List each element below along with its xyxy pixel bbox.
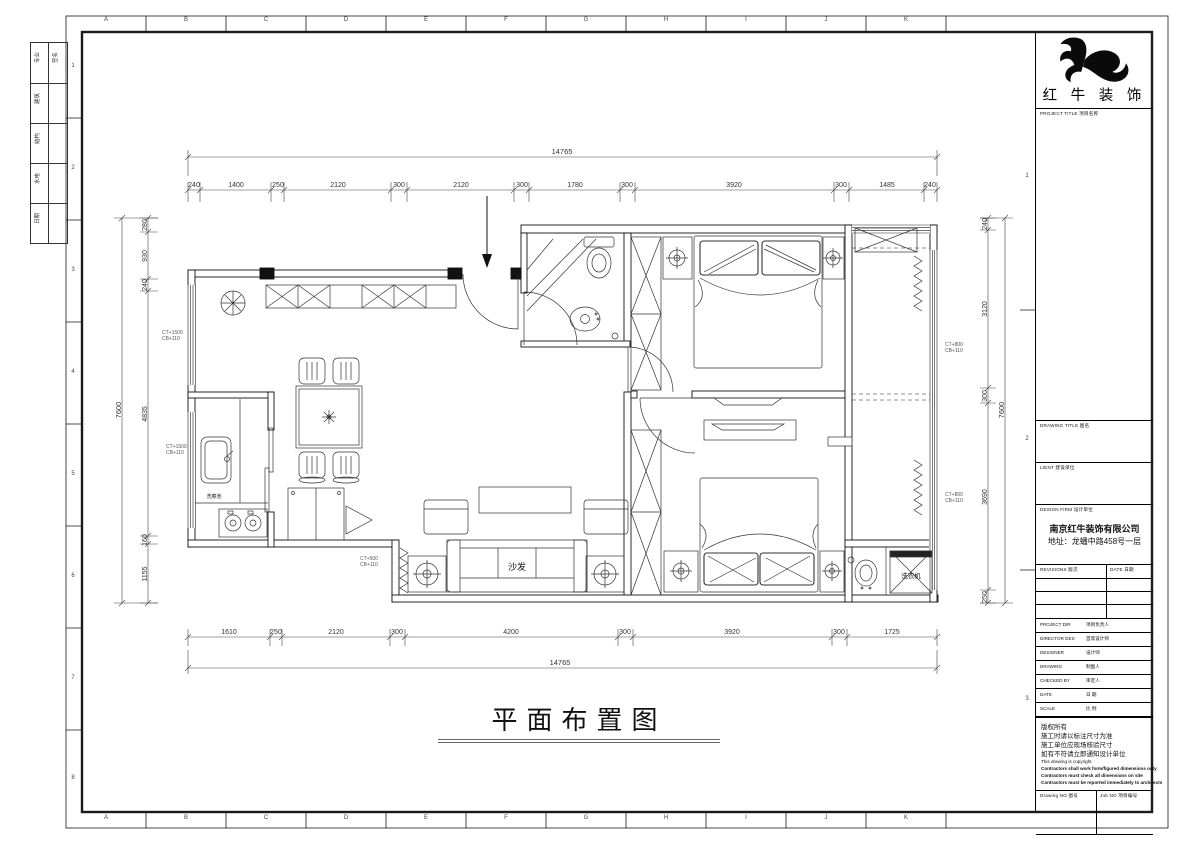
dim-bottom-total: 14765 xyxy=(550,658,571,667)
dim-bottom-4: 4200 xyxy=(503,629,519,636)
window-tag: CT+1500 CB+110 xyxy=(166,444,187,456)
dim-bottom-1: 250 xyxy=(270,629,282,636)
drawing-title-text: 平面布置图 xyxy=(438,700,720,737)
sign-cell: 建筑 xyxy=(33,93,41,104)
project-title-label: PROJECT TITLE 项目名称 xyxy=(1040,111,1098,117)
grid-letter: I xyxy=(740,17,752,23)
sign-cell: 专业 xyxy=(33,52,41,63)
entry-arrow xyxy=(482,196,492,268)
dining xyxy=(296,358,362,483)
client-label: LIENT 建设单位 xyxy=(1040,465,1075,471)
tb-row-drawing: DRAWING 制图人 xyxy=(1036,660,1153,674)
dim-left-3: 4835 xyxy=(142,406,149,422)
dim-top-6: 300 xyxy=(516,182,528,189)
dim-top-4: 300 xyxy=(393,182,405,189)
window-tag: CT+500 CB+110 xyxy=(360,556,378,568)
dim-top-8: 300 xyxy=(621,182,633,189)
drawing-title-label: DRAWING TITLE 图名 xyxy=(1040,423,1089,429)
dim-bottom-6: 3920 xyxy=(724,629,740,636)
note-en: Contractors must check all dimensions on… xyxy=(1041,773,1143,778)
dim-top-10: 300 xyxy=(835,182,847,189)
grid-letter: D xyxy=(340,17,352,23)
sign-cell: 结构 xyxy=(33,133,41,144)
grid-letter: H xyxy=(660,17,672,23)
row-number: 8 xyxy=(68,775,78,781)
dim-right-total: 7600 xyxy=(997,402,1006,419)
window-tag-line: CB+110 xyxy=(166,450,187,456)
dim-bottom-0: 1610 xyxy=(221,629,237,636)
tb-row-designer: DESIGNER 设计师 xyxy=(1036,646,1153,660)
sink-label: 洗菜池 xyxy=(206,493,221,500)
dim-bottom-8: 1725 xyxy=(884,629,900,636)
grid-letter: C xyxy=(260,17,272,23)
grid-letter: K xyxy=(900,815,912,821)
kitchen xyxy=(195,399,268,537)
living-room xyxy=(288,487,628,593)
window-tag-line: CB+110 xyxy=(360,562,378,568)
job-no-label: Job NO 项目编号 xyxy=(1100,793,1137,799)
grid-letter: K xyxy=(900,17,912,23)
dim-top-total: 14765 xyxy=(552,147,573,156)
tb-row-cn: 比 例 xyxy=(1086,706,1096,717)
drawing-no-label: Drawing NO 图号 xyxy=(1040,793,1078,799)
tb-row-cn: 首席设计师 xyxy=(1086,636,1109,647)
dim-top-11: 1485 xyxy=(879,182,895,189)
grid-letter: A xyxy=(100,17,112,23)
tb-row-cn: 审定人 xyxy=(1086,678,1100,689)
tb-row-cn: 项目负责人 xyxy=(1086,622,1109,633)
row-number: 2 xyxy=(1022,436,1032,442)
grid-letter: H xyxy=(660,815,672,821)
grid-letter: B xyxy=(180,815,192,821)
firm-address: 地址：龙蟠中路458号一层 xyxy=(1036,536,1153,547)
company-name: 红 牛 装 饰 xyxy=(1036,84,1153,105)
revisions-label: REVISIONS 版次 xyxy=(1040,567,1078,573)
tb-row-date: DATE 日 期 xyxy=(1036,688,1153,702)
window-tag-line: CB+110 xyxy=(945,498,963,504)
dim-bottom-3: 300 xyxy=(391,629,403,636)
dim-top-5: 2120 xyxy=(453,182,469,189)
dim-right-2: 300 xyxy=(982,390,989,402)
row-number: 3 xyxy=(68,267,78,273)
title-block: 红 牛 装 饰 PROJECT TITLE 项目名称 DRAWING TITLE… xyxy=(1035,32,1153,812)
walls xyxy=(188,225,938,602)
dim-left-total: 7600 xyxy=(114,402,123,419)
dim-top-7: 1780 xyxy=(567,182,583,189)
sign-cell: 日期 xyxy=(33,213,41,224)
signature-table: 专业 签名 建筑 结构 水电 日期 xyxy=(30,42,68,244)
grid-letter: B xyxy=(180,17,192,23)
dim-top-2: 250 xyxy=(272,182,284,189)
row-number: 4 xyxy=(68,369,78,375)
sign-cell: 签名 xyxy=(51,52,59,63)
window-tag: CT+800 CB+110 xyxy=(945,342,963,354)
dim-bottom-7: 300 xyxy=(833,629,845,636)
sign-cell: 水电 xyxy=(33,173,41,184)
master-bedroom xyxy=(631,236,844,390)
note-cn: 如有不符请立即通知设计单位 xyxy=(1041,748,1126,758)
row-number: 2 xyxy=(68,165,78,171)
tb-row-en: SCALE xyxy=(1040,706,1086,717)
grid-letter: A xyxy=(100,815,112,821)
grid-letter: C xyxy=(260,815,272,821)
tb-row-checked: CHECKED BY 审定人 xyxy=(1036,674,1153,688)
balcony xyxy=(855,228,922,515)
dim-left-4: 160 xyxy=(142,534,149,546)
dim-right-3: 3690 xyxy=(982,489,989,505)
date-col-label: DATE 日期 xyxy=(1110,567,1134,573)
dim-top-9: 3920 xyxy=(726,182,742,189)
window-tag: CT+800 CB+110 xyxy=(945,492,963,504)
dim-right-4: 250 xyxy=(982,591,989,603)
plant xyxy=(221,291,245,315)
dim-top-1: 1400 xyxy=(228,182,244,189)
grid-letter: G xyxy=(580,17,592,23)
drawing-sheet: 14765 240 1400 250 2120 300 2120 300 178… xyxy=(0,0,1200,844)
design-firm-label: DESIGN FIRM 设计单位 xyxy=(1040,507,1093,513)
row-number: 1 xyxy=(1022,173,1032,179)
grid-letter: F xyxy=(500,815,512,821)
tb-row-project-dir: PROJECT DIR 项目负责人 xyxy=(1036,618,1153,632)
row-number: 5 xyxy=(68,471,78,477)
sofa-label: 沙发 xyxy=(508,561,526,572)
dim-top-12: 240 xyxy=(924,182,936,189)
tb-row-en: CHECKED BY xyxy=(1040,678,1086,689)
grid-letter: E xyxy=(420,815,432,821)
row-number: 7 xyxy=(68,675,78,681)
dim-right-1: 3120 xyxy=(982,301,989,317)
dim-left-0: 280 xyxy=(142,219,149,231)
firm-name: 南京红牛装饰有限公司 xyxy=(1036,522,1153,535)
dim-bottom-5: 300 xyxy=(619,629,631,636)
note-en: Contractors must be reported immediately… xyxy=(1041,780,1162,785)
grid-letter: I xyxy=(740,815,752,821)
title-underline xyxy=(438,739,720,740)
grid-letter: G xyxy=(580,815,592,821)
window-tag: CT+1500 CB+110 xyxy=(162,330,183,342)
tb-row-cn: 日 期 xyxy=(1086,692,1096,703)
row-number: 1 xyxy=(68,63,78,69)
grid-letter: J xyxy=(820,17,832,23)
tb-row-en: PROJECT DIR xyxy=(1040,622,1086,633)
grid-letter: J xyxy=(820,815,832,821)
dim-left-1: 930 xyxy=(142,250,149,262)
washer-label: 洗衣机 xyxy=(901,571,921,580)
tb-row-director: DIRECTOR DES 首席设计师 xyxy=(1036,632,1153,646)
tb-row-en: DIRECTOR DES xyxy=(1040,636,1086,647)
tb-row-en: DATE xyxy=(1040,692,1086,703)
dim-left-5: 1155 xyxy=(142,566,149,581)
title-underline xyxy=(438,742,720,743)
bedroom-2 xyxy=(631,398,852,595)
grid-letter: D xyxy=(340,815,352,821)
row-number: 6 xyxy=(68,573,78,579)
dim-left-2: 240 xyxy=(142,279,149,291)
window-tag-line: CB+110 xyxy=(162,336,183,342)
note-en: Contractors shall work form/figured dime… xyxy=(1041,766,1157,771)
window-tag-line: CB+110 xyxy=(945,348,963,354)
grid-letter: F xyxy=(500,17,512,23)
tb-row-en: DRAWING xyxy=(1040,664,1086,675)
grid-letter: E xyxy=(420,17,432,23)
bathroom-bottom xyxy=(848,547,932,595)
row-number: 3 xyxy=(1022,696,1032,702)
dim-bottom-2: 2120 xyxy=(328,629,344,636)
dim-right-0: 240 xyxy=(982,218,989,230)
dim-top-3: 2120 xyxy=(330,182,346,189)
note-en: This drawing is copyright xyxy=(1041,759,1092,764)
tb-row-cn: 设计师 xyxy=(1086,650,1100,661)
tb-row-scale: SCALE 比 例 xyxy=(1036,702,1153,716)
tb-row-cn: 制图人 xyxy=(1086,664,1100,675)
tb-row-en: DESIGNER xyxy=(1040,650,1086,661)
company-logo-icon xyxy=(1049,34,1141,84)
dim-top-0: 240 xyxy=(188,182,200,189)
hall-closet xyxy=(266,285,456,308)
